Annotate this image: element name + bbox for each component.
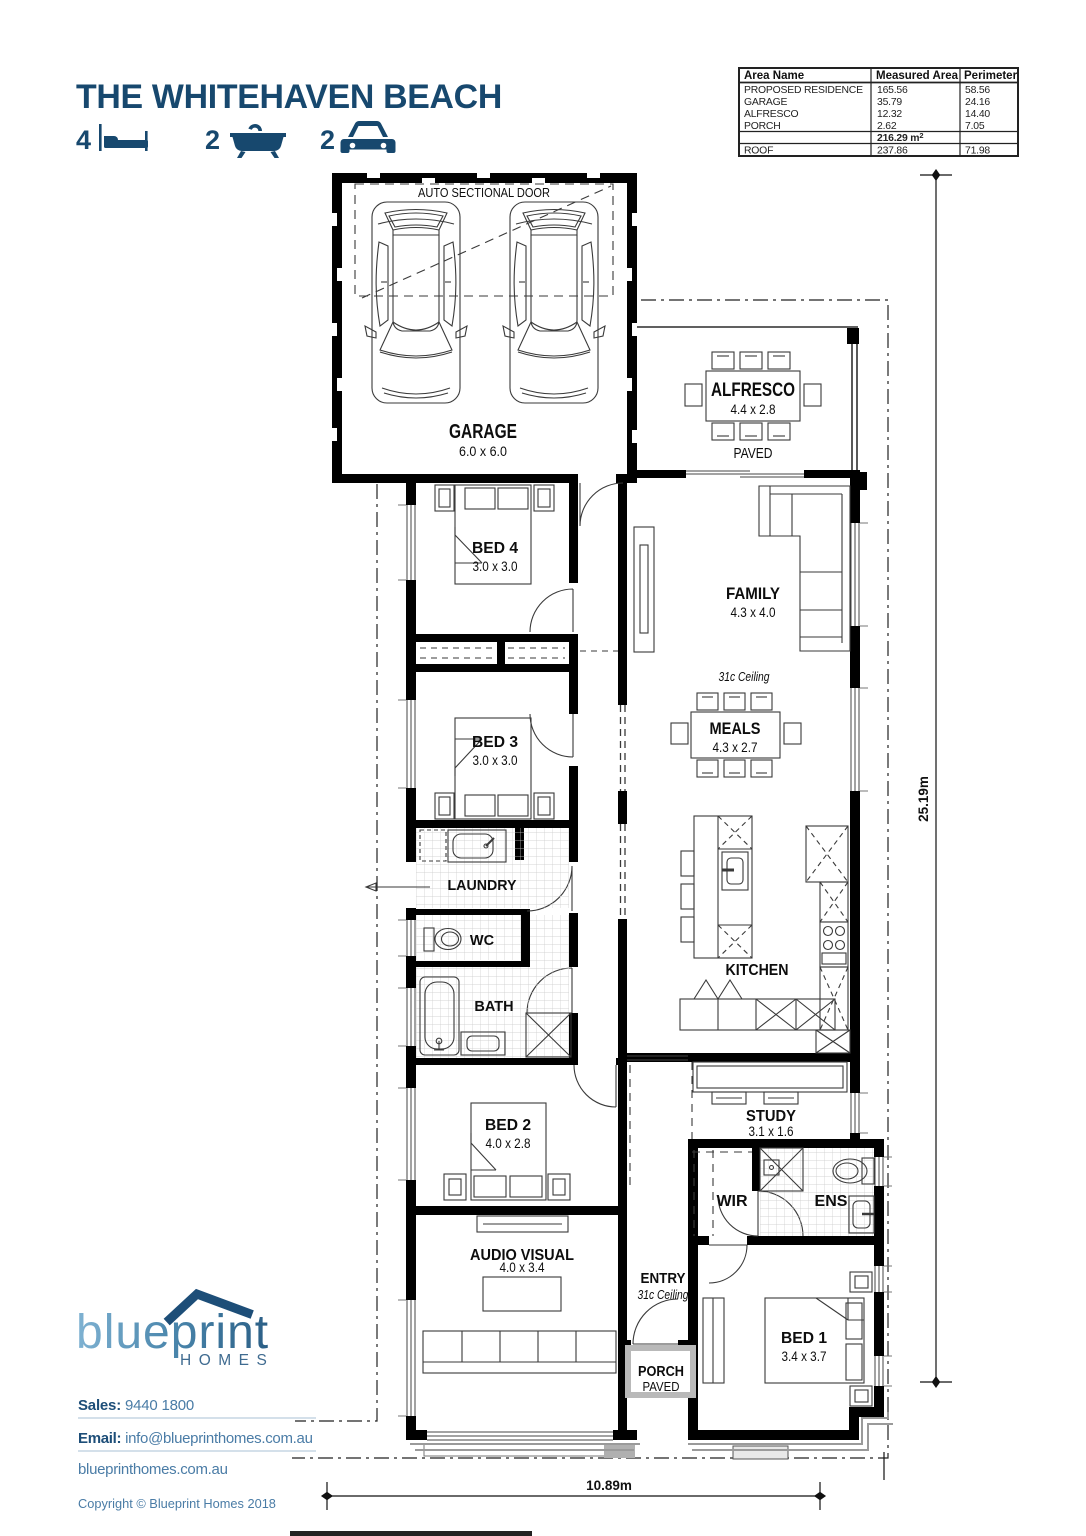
svg-text:BATH: BATH [474,999,513,1015]
svg-text:10.89m: 10.89m [586,1478,632,1493]
svg-text:PORCH: PORCH [638,1364,684,1380]
svg-text:4.4 x 2.8: 4.4 x 2.8 [731,402,776,417]
svg-text:4.0 x 2.8: 4.0 x 2.8 [486,1136,531,1151]
svg-text:ENTRY: ENTRY [641,1270,686,1287]
svg-text:BED 2: BED 2 [485,1117,531,1134]
svg-text:ENS: ENS [815,1193,848,1210]
svg-text:216.29 m2: 216.29 m2 [877,131,923,144]
svg-text:ALFRESCO: ALFRESCO [744,109,799,120]
svg-text:Sales: 9440 1800: Sales: 9440 1800 [78,1397,194,1414]
svg-text:MEALS: MEALS [710,719,761,738]
svg-text:PAVED: PAVED [734,446,773,462]
svg-text:4.3 x 4.0: 4.3 x 4.0 [731,605,776,620]
svg-text:WIR: WIR [716,1193,748,1210]
svg-text:BED 3: BED 3 [472,734,518,751]
svg-text:14.40: 14.40 [965,109,990,120]
svg-text:FAMILY: FAMILY [726,584,781,603]
svg-text:HOMES: HOMES [180,1352,274,1369]
svg-text:PROPOSED RESIDENCE: PROPOSED RESIDENCE [744,85,863,96]
svg-text:3.0 x 3.0: 3.0 x 3.0 [473,753,518,768]
svg-text:STUDY: STUDY [746,1108,796,1125]
svg-text:237.86: 237.86 [877,146,908,157]
svg-text:KITCHEN: KITCHEN [726,962,789,979]
svg-text:GARAGE: GARAGE [744,97,788,108]
svg-text:3.0 x 3.0: 3.0 x 3.0 [473,559,518,574]
svg-text:12.32: 12.32 [877,109,902,120]
svg-text:Perimeter: Perimeter [964,70,1018,82]
svg-text:Email: info@blueprinthomes.com: Email: info@blueprinthomes.com.au [78,1430,313,1447]
svg-text:2.62: 2.62 [877,121,897,132]
svg-text:31c Ceiling: 31c Ceiling [719,670,770,684]
svg-text:7.05: 7.05 [965,121,985,132]
svg-text:31c Ceiling: 31c Ceiling [638,1288,689,1302]
svg-text:35.79: 35.79 [877,97,902,108]
svg-text:2: 2 [205,125,220,155]
svg-text:6.0 x 6.0: 6.0 x 6.0 [459,444,507,459]
svg-text:GARAGE: GARAGE [449,421,517,443]
svg-text:LAUNDRY: LAUNDRY [448,878,517,894]
svg-text:4: 4 [76,125,91,155]
svg-text:165.56: 165.56 [877,85,908,96]
svg-text:BED 4: BED 4 [472,540,518,557]
svg-text:PAVED: PAVED [643,1379,680,1394]
svg-text:AUTO SECTIONAL DOOR: AUTO SECTIONAL DOOR [418,186,550,200]
svg-text:3.4 x 3.7: 3.4 x 3.7 [782,1349,827,1364]
svg-text:4.3 x 2.7: 4.3 x 2.7 [713,740,758,755]
svg-text:25.19m: 25.19m [916,776,931,822]
svg-text:2: 2 [320,125,335,155]
svg-text:3.1 x 1.6: 3.1 x 1.6 [749,1124,794,1139]
svg-text:Measured Area: Measured Area [876,70,959,82]
svg-text:4.0 x 3.4: 4.0 x 3.4 [500,1260,545,1275]
svg-text:Area Name: Area Name [744,70,804,82]
svg-text:PORCH: PORCH [744,121,781,132]
svg-text:71.98: 71.98 [965,146,990,157]
svg-text:WC: WC [470,933,495,949]
svg-text:BED 1: BED 1 [781,1330,827,1347]
svg-text:ROOF: ROOF [744,146,773,157]
svg-text:58.56: 58.56 [965,85,990,96]
svg-text:Copyright © Blueprint Homes 20: Copyright © Blueprint Homes 2018 [78,1496,276,1511]
svg-text:THE WHITEHAVEN BEACH: THE WHITEHAVEN BEACH [76,78,502,116]
svg-text:24.16: 24.16 [965,97,990,108]
svg-text:ALFRESCO: ALFRESCO [711,380,795,401]
svg-text:blueprinthomes.com.au: blueprinthomes.com.au [78,1461,228,1478]
